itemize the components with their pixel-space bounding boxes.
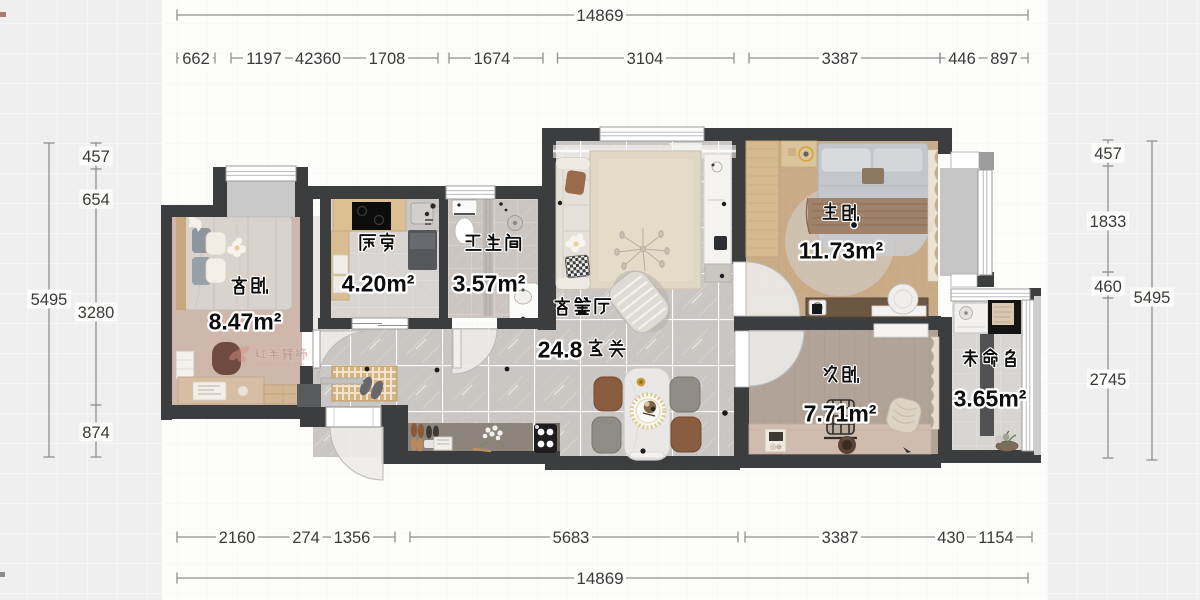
svg-text:5495: 5495 <box>31 291 68 309</box>
svg-text:3280: 3280 <box>78 304 115 322</box>
svg-text:446: 446 <box>948 50 976 68</box>
svg-text:5683: 5683 <box>553 529 590 547</box>
svg-text:3104: 3104 <box>627 50 664 68</box>
svg-text:11.73m²: 11.73m² <box>799 237 884 263</box>
svg-text:1674: 1674 <box>474 50 511 68</box>
svg-text:1708: 1708 <box>369 50 406 68</box>
svg-text:457: 457 <box>82 148 110 166</box>
svg-text:3387: 3387 <box>822 50 859 68</box>
svg-text:430: 430 <box>937 529 965 547</box>
svg-text:4.20m²: 4.20m² <box>342 270 415 296</box>
svg-text:274: 274 <box>292 529 320 547</box>
svg-text:2160: 2160 <box>219 529 256 547</box>
svg-text:460: 460 <box>1094 278 1122 296</box>
svg-text:654: 654 <box>82 191 110 209</box>
svg-text:3.65m²: 3.65m² <box>954 385 1027 411</box>
svg-text:897: 897 <box>990 50 1018 68</box>
svg-text:3.57m²: 3.57m² <box>453 270 526 296</box>
svg-text:1356: 1356 <box>334 529 371 547</box>
svg-text:7.71m²: 7.71m² <box>804 400 877 426</box>
svg-text:874: 874 <box>82 424 110 442</box>
svg-text:1197: 1197 <box>246 50 281 68</box>
svg-text:8.47m²: 8.47m² <box>209 308 282 334</box>
svg-text:5495: 5495 <box>1134 289 1171 307</box>
svg-text:1833: 1833 <box>1090 213 1127 231</box>
svg-text:3387: 3387 <box>822 529 859 547</box>
svg-text:42360: 42360 <box>295 50 341 68</box>
svg-text:662: 662 <box>182 50 210 68</box>
svg-text:2745: 2745 <box>1090 371 1127 389</box>
svg-text:24.8: 24.8 <box>538 336 583 362</box>
svg-text:457: 457 <box>1094 145 1122 163</box>
svg-text:14869: 14869 <box>576 6 623 25</box>
svg-text:1154: 1154 <box>978 529 1013 547</box>
svg-text:14869: 14869 <box>576 569 623 588</box>
